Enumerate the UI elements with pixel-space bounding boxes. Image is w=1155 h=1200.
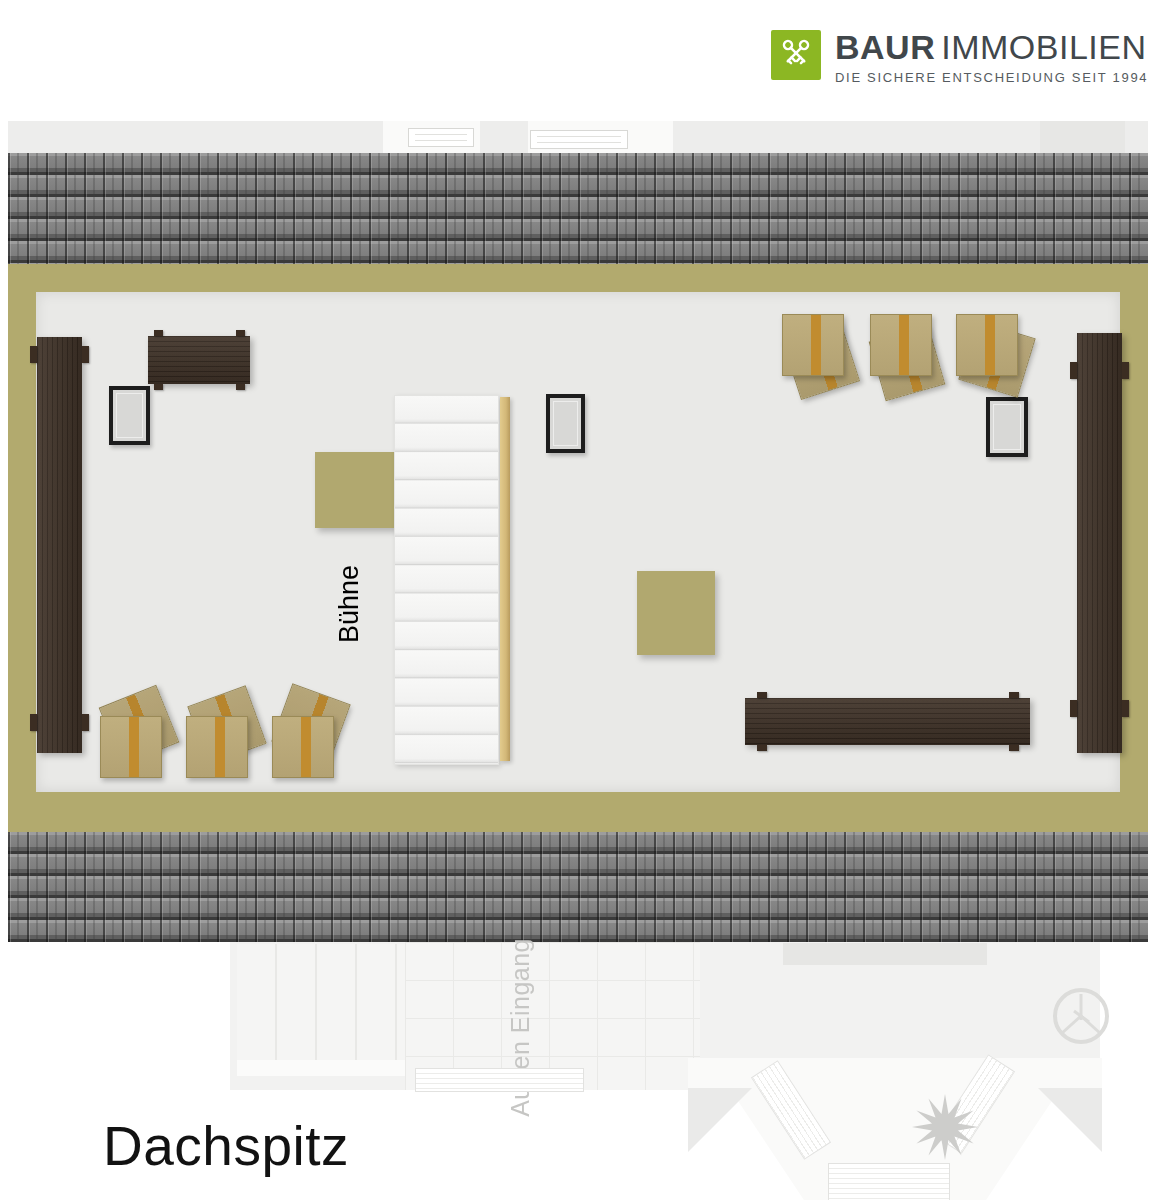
logo-square (771, 30, 821, 80)
bench-foot (82, 714, 89, 731)
window-frame-left (109, 386, 150, 445)
ghost-bay-corner (1038, 1088, 1102, 1152)
ghost-deck-planks (237, 944, 405, 1076)
floor-title: Dachspitz (103, 1114, 349, 1178)
stacked-chair (100, 716, 162, 778)
brand-name: BAURIMMOBILIEN (835, 30, 1148, 64)
table-top-left (148, 336, 250, 384)
floor-plan-canvas: BAURIMMOBILIEN DIE SICHERE ENTSCHEIDUNG … (0, 0, 1155, 1200)
chair-stack (952, 310, 1032, 402)
plant-icon (912, 1094, 978, 1164)
stacked-chair (870, 314, 932, 376)
ghost-bench (415, 1068, 584, 1092)
logo-text: BAURIMMOBILIEN DIE SICHERE ENTSCHEIDUNG … (835, 30, 1148, 85)
ghost-window (408, 128, 474, 147)
ghost-bench (828, 1163, 950, 1200)
bench-foot (1122, 700, 1129, 717)
table-foot (236, 384, 245, 390)
stacked-chair (782, 314, 844, 376)
stage-label: Bühne (334, 565, 365, 643)
ghost-block (1040, 121, 1125, 155)
roof-tiles-top (8, 153, 1148, 264)
brand-name-light: IMMOBILIEN (941, 28, 1146, 66)
stacked-chair (186, 716, 248, 778)
bench-foot (1070, 700, 1077, 717)
chair-stack (182, 692, 262, 784)
bench-right (1077, 333, 1122, 753)
bench-foot (82, 346, 89, 363)
window-frame-center (546, 394, 585, 453)
staircase-rail (500, 397, 510, 761)
brand-name-bold: BAUR (835, 28, 935, 66)
ghost-bay-corner (688, 1088, 752, 1152)
bench-foot (757, 745, 767, 751)
chair-stack (866, 310, 946, 402)
stage-block-left (315, 452, 395, 528)
bench-foot (1009, 745, 1019, 751)
stacked-chair (956, 314, 1018, 376)
ghost-bay-strip (688, 1058, 1102, 1088)
stacked-chair (272, 716, 334, 778)
bench-foot (1122, 362, 1129, 379)
bench-foot (757, 692, 767, 698)
stage-block-center (637, 571, 715, 655)
ghost-stage-patch (783, 943, 987, 965)
chair-stack (96, 692, 176, 784)
bench-foot (1009, 692, 1019, 698)
table-foot (236, 330, 245, 336)
crossed-keys-icon (776, 33, 816, 77)
window-frame-right (986, 397, 1028, 457)
ceiling-fan-icon (1050, 986, 1114, 1052)
table-foot (154, 330, 163, 336)
table-foot (154, 384, 163, 390)
bench-foot (30, 714, 37, 731)
ghost-deck-band (237, 1060, 405, 1076)
brand-tagline: DIE SICHERE ENTSCHEIDUNG SEIT 1994 (835, 70, 1148, 85)
ghost-window (530, 130, 628, 149)
chair-stack (268, 692, 348, 784)
bench-bottom-right (745, 698, 1030, 745)
staircase (394, 395, 499, 765)
brand-logo: BAURIMMOBILIEN DIE SICHERE ENTSCHEIDUNG … (771, 30, 1148, 85)
bench-left (37, 337, 82, 753)
bench-foot (30, 346, 37, 363)
roof-tiles-bottom (8, 832, 1148, 942)
bench-foot (1070, 362, 1077, 379)
chair-stack (778, 310, 858, 402)
